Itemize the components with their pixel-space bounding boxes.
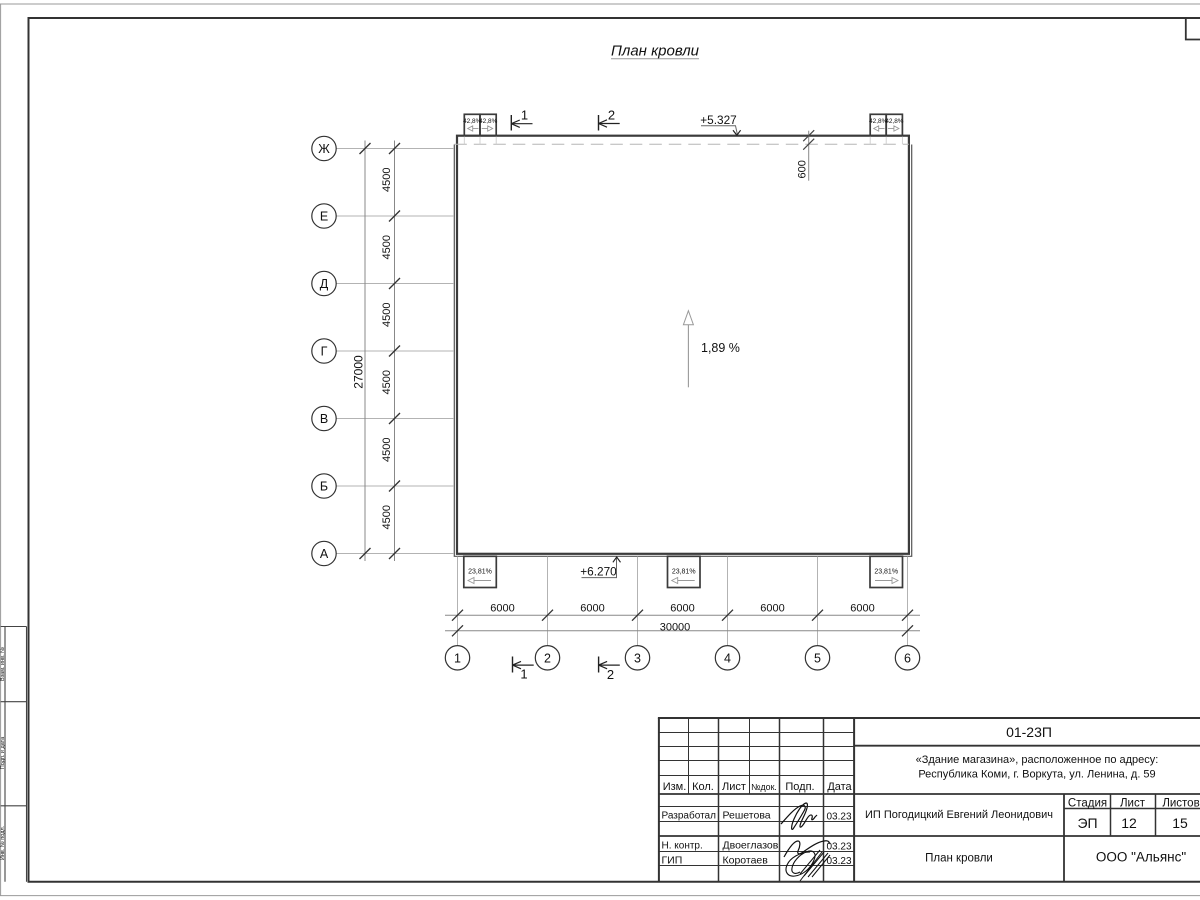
svg-text:Двоеглазов: Двоеглазов (723, 839, 779, 851)
svg-text:«Здание магазина», расположенн: «Здание магазина», расположенное по адре… (916, 754, 1159, 766)
svg-text:1: 1 (454, 651, 461, 665)
svg-text:15: 15 (1172, 815, 1188, 831)
svg-text:Листов: Листов (1162, 797, 1199, 809)
svg-text:01-23П: 01-23П (1006, 724, 1052, 740)
svg-text:Д: Д (320, 277, 329, 291)
svg-text:1,89 %: 1,89 % (701, 341, 740, 355)
svg-text:+6.270: +6.270 (580, 564, 617, 578)
svg-text:Изм.: Изм. (663, 781, 687, 793)
svg-text:Инв. № подл.: Инв. № подл. (0, 825, 6, 860)
svg-text:600: 600 (797, 160, 809, 178)
svg-text:Республика Коми, г. Воркута, у: Республика Коми, г. Воркута, ул. Ленина,… (918, 769, 1155, 781)
svg-text:2: 2 (608, 108, 615, 123)
svg-text:03.23: 03.23 (826, 856, 851, 867)
svg-text:А: А (320, 547, 329, 561)
svg-text:4500: 4500 (381, 235, 393, 259)
svg-text:30000: 30000 (660, 621, 691, 633)
svg-text:План кровли: План кровли (611, 43, 700, 60)
svg-text:2: 2 (544, 651, 551, 665)
svg-text:ИП Погодицкий Евгений Леонидов: ИП Погодицкий Евгений Леонидович (865, 809, 1053, 821)
svg-text:12: 12 (1121, 815, 1137, 831)
svg-text:27000: 27000 (351, 355, 365, 389)
svg-text:42,8%: 42,8% (479, 118, 497, 125)
svg-text:ГИП: ГИП (662, 854, 683, 866)
svg-text:1: 1 (520, 667, 527, 682)
svg-text:6000: 6000 (670, 603, 694, 615)
svg-text:4: 4 (724, 651, 731, 665)
svg-text:23,81%: 23,81% (468, 569, 492, 576)
svg-text:23,81%: 23,81% (874, 569, 898, 576)
svg-text:03.23: 03.23 (826, 812, 851, 823)
svg-text:4500: 4500 (381, 438, 393, 462)
svg-text:6000: 6000 (580, 603, 604, 615)
svg-text:5: 5 (814, 651, 821, 665)
svg-text:Дата: Дата (827, 781, 852, 793)
svg-text:6: 6 (904, 651, 911, 665)
svg-text:4500: 4500 (381, 168, 393, 192)
svg-text:Подп. и дата: Подп. и дата (0, 736, 6, 769)
svg-text:23,81%: 23,81% (672, 569, 696, 576)
svg-text:ООО "Альянс": ООО "Альянс" (1096, 850, 1186, 865)
svg-text:1: 1 (521, 108, 528, 123)
svg-text:2: 2 (607, 667, 614, 682)
svg-text:4500: 4500 (381, 370, 393, 394)
svg-text:Стадия: Стадия (1068, 797, 1107, 809)
svg-text:Г: Г (321, 345, 328, 359)
svg-text:4500: 4500 (381, 505, 393, 529)
svg-text:4500: 4500 (381, 303, 393, 327)
svg-text:6000: 6000 (490, 603, 514, 615)
svg-text:Б: Б (320, 480, 328, 494)
svg-text:Взам. инв. №: Взам. инв. № (0, 647, 6, 681)
svg-text:Коротаев: Коротаев (723, 854, 769, 866)
svg-text:ЭП: ЭП (1077, 815, 1097, 831)
svg-text:42,8%: 42,8% (885, 118, 903, 125)
svg-text:Кол.: Кол. (692, 781, 714, 793)
svg-text:Лист: Лист (722, 781, 746, 793)
svg-text:3: 3 (634, 651, 641, 665)
svg-text:6000: 6000 (760, 603, 784, 615)
svg-text:№док.: №док. (751, 782, 777, 792)
svg-text:План кровли: План кровли (925, 853, 993, 865)
svg-text:Н. контр.: Н. контр. (662, 840, 703, 851)
svg-text:Лист: Лист (1120, 797, 1146, 809)
svg-text:6000: 6000 (850, 603, 874, 615)
svg-text:+5.327: +5.327 (700, 113, 736, 127)
svg-text:В: В (320, 412, 328, 426)
svg-text:Подп.: Подп. (785, 781, 814, 793)
svg-text:Е: Е (320, 210, 328, 224)
svg-text:Решетова: Решетова (723, 810, 771, 822)
svg-text:Разработал: Разработал (662, 810, 717, 822)
svg-text:03.23: 03.23 (826, 842, 851, 853)
svg-text:Ж: Ж (318, 142, 330, 156)
